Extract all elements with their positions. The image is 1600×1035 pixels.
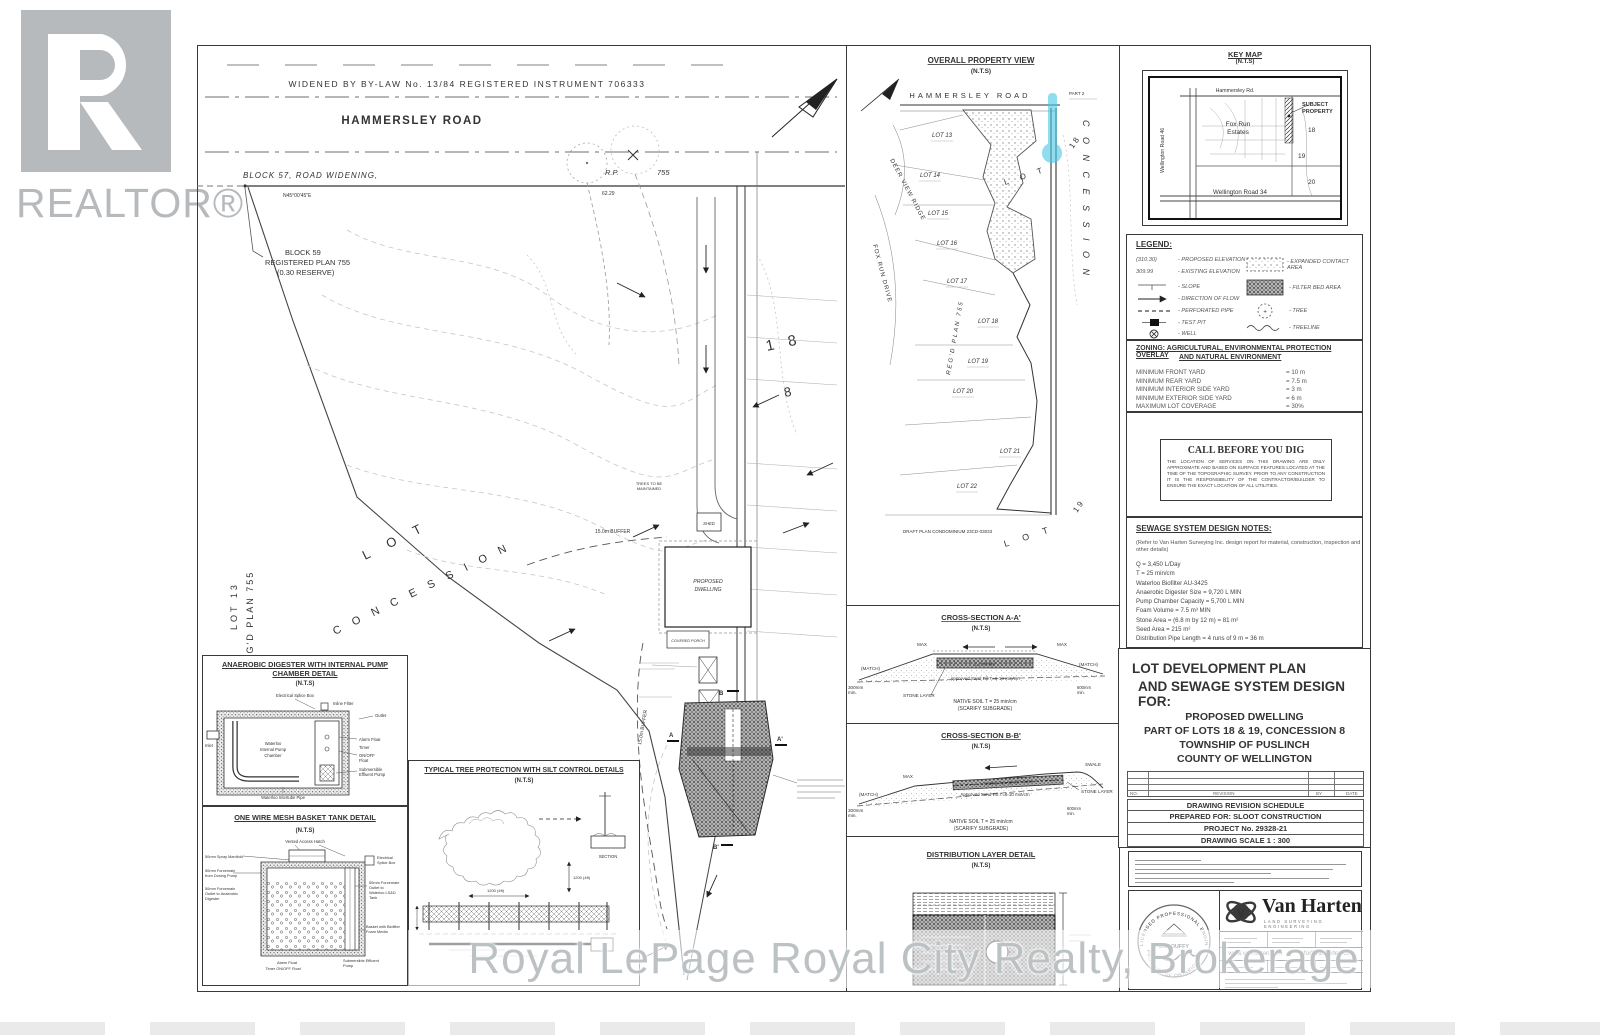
ca-native: NATIVE SOIL T = 25 min/cm xyxy=(953,699,1016,705)
zoning-row1-label: MINIMUM REAR YARD xyxy=(1136,378,1286,387)
digester-sub-2: Effluent Pump xyxy=(359,772,386,777)
lot-18-number: 1 8 xyxy=(764,331,803,355)
sewage-title: SEWAGE SYSTEM DESIGN NOTES: xyxy=(1136,524,1272,533)
sewage-intro-2: other details) xyxy=(1136,547,1168,553)
revision-table: NO. REVISION BY DATE xyxy=(1127,771,1364,797)
legend-label-perforated: - PERFORATED PIPE xyxy=(1178,308,1234,314)
treeline-icon xyxy=(1245,323,1289,333)
basket-fa-3: Digester xyxy=(205,896,220,901)
call-before-dig-panel: CALL BEFORE YOU DIG THE LOCATION OF SERV… xyxy=(1126,412,1363,517)
section-b2-marker: B' xyxy=(713,845,719,851)
svg-text:LOT 22: LOT 22 xyxy=(957,484,978,490)
panel-divider-2 xyxy=(1119,46,1120,991)
basket-sub-2: Pump xyxy=(343,963,353,968)
keymap-20: 20 xyxy=(1308,179,1316,186)
zoning-row0-value: = 10 m xyxy=(1286,369,1305,378)
rev-col-by: BY xyxy=(1316,791,1322,796)
shed-label: SHED xyxy=(703,521,715,526)
sewage-item-6: Stone Area = (6.8 m by 12 m) = 81 m² xyxy=(1136,616,1264,625)
sewage-item-7: Seed Area = 215 m² xyxy=(1136,625,1264,634)
dwelling-label-2: DWELLING xyxy=(694,587,721,593)
legend-label-slope: - SLOPE xyxy=(1178,284,1200,290)
cross-a-nts: (N.T.S) xyxy=(972,626,991,632)
digester-inlet-label: Inlet xyxy=(205,743,214,748)
north-arrow-icon xyxy=(772,79,837,137)
keymap-18: 18 xyxy=(1308,127,1316,134)
sewage-item-0: Q = 3,450 L/Day xyxy=(1136,560,1264,569)
vanharten-globe-icon: V xyxy=(1224,895,1258,929)
filter-bed-icon xyxy=(1245,279,1289,297)
basket-timer-label: Timer ON/OFF Float xyxy=(265,966,301,971)
drawing-scale-row: DRAWING SCALE 1 : 300 xyxy=(1127,835,1364,847)
road-label: HAMMERSLEY ROAD xyxy=(341,115,482,127)
ca-max-r: MAX xyxy=(1057,642,1067,647)
fine-print-notes xyxy=(1128,851,1362,887)
distance-label: 62.29 xyxy=(602,191,615,197)
buffer-label-2: 15.0m BUFFER xyxy=(595,529,631,535)
brokerage-watermark-band: Royal LePage Royal City Realty, Brokerag… xyxy=(408,930,1420,988)
vanharten-logo-row: V Van Harten LAND SURVEYING ENGINEERING xyxy=(1220,891,1363,931)
bottom-scan-strip xyxy=(0,1022,1600,1035)
legend-sym-proposed: (310.30) xyxy=(1136,257,1178,263)
digester-title-2: CHAMBER DETAIL xyxy=(203,669,407,678)
block59-line1: BLOCK 59 xyxy=(285,248,321,257)
svg-text:LOT 20: LOT 20 xyxy=(953,389,974,395)
zoning-row2-value: = 3 m xyxy=(1286,386,1302,395)
dist-nts: (N.T.S) xyxy=(972,863,991,869)
digester-detail-panel: ANAEROBIC DIGESTER WITH INTERNAL PUMP CH… xyxy=(202,655,408,806)
legend-label-contact: - EXPANDED CONTACT AREA xyxy=(1287,259,1362,271)
basket-splice-2: Splice Box xyxy=(377,860,395,865)
sewage-item-1: T = 25 min/cm xyxy=(1136,569,1264,578)
titleblock-p1: PROPOSED DWELLING xyxy=(1119,711,1370,723)
ca-match-r: (MATCH) xyxy=(1079,662,1099,667)
digester-splice-label: Electrical Splice Box xyxy=(276,693,315,698)
svg-text:LOT 21: LOT 21 xyxy=(1000,449,1020,455)
overall-lot-bottom-label: L O T xyxy=(1003,523,1056,549)
basket-alarm-label: Alarm Float xyxy=(277,960,298,965)
call-dig-body: THE LOCATION OF SERVICES ON THIS DRAWING… xyxy=(1161,456,1331,492)
vanharten-name: Van Harten xyxy=(1262,895,1362,918)
digester-timer-label: Timer xyxy=(359,745,370,750)
cb-match: (MATCH) xyxy=(859,792,879,797)
sewage-item-4: Pump Chamber Capacity = 5,700 L MIN xyxy=(1136,597,1264,606)
rev-col-no: NO. xyxy=(1130,791,1138,796)
cb-stone: STONE LAYER xyxy=(1081,789,1113,794)
section-b-marker: B xyxy=(719,691,724,697)
cross-b-nts: (N.T.S) xyxy=(972,744,991,750)
block59-line2: REGISTERED PLAN 755 xyxy=(265,258,350,267)
buffer-label-1: 15.0m BUFFER xyxy=(637,709,649,745)
tree-section-label: SECTION xyxy=(599,854,618,859)
draft-plan-label: DRAFT PLAN CONDOMINIUM 23CD-03033 xyxy=(903,529,993,534)
lot-diagonal-label: L O T xyxy=(360,518,431,563)
ca-sand: Approved Sand Fill T=6-10 min/cm xyxy=(950,676,1020,681)
legend-label-existing: - EXISTING ELEVATION xyxy=(1178,269,1240,275)
keymap-nts: (N.T.S) xyxy=(1128,59,1362,65)
tree-canopy xyxy=(439,811,541,886)
deer-view-ridge-label: DEER VIEW RIDGE xyxy=(888,158,926,222)
concession-8-number: 8 xyxy=(783,384,793,400)
digester-alarm-label: Alarm Float xyxy=(359,737,381,742)
cb-scarify: (SCARIFY SUBGRADE) xyxy=(954,826,1009,832)
basket-hatch-label: Vented Access Hatch xyxy=(285,839,325,844)
perforated-pipe-icon xyxy=(1136,307,1178,315)
digester-nts: (N.T.S) xyxy=(203,681,407,687)
part2-label: PART 2 xyxy=(1069,91,1085,96)
keymap-wellington46: Wellington Road 46 xyxy=(1160,128,1166,173)
legend-label-proposed: - PROPOSED ELEVATION xyxy=(1178,257,1245,263)
well-icon xyxy=(1136,329,1178,339)
zoning-row3-value: = 6 m xyxy=(1286,395,1302,404)
svg-text:LOT 18: LOT 18 xyxy=(978,319,999,325)
basket-title: ONE WIRE MESH BASKET TANK DETAIL xyxy=(203,813,407,822)
sewage-item-8: Distribution Pipe Length = 4 runs of 9 m… xyxy=(1136,634,1264,643)
bearing-label: N45°00'45"E xyxy=(283,193,312,199)
trees-maintained-note: TREES TO BE MAINTAINED xyxy=(636,481,663,491)
tree-dim-1: 1200 (4ft) xyxy=(573,875,591,880)
cb-600b: min. xyxy=(1067,811,1075,816)
sewage-intro-1: (Refer to Van Harten Surveying Inc. desi… xyxy=(1136,540,1360,546)
titleblock-h2: AND SEWAGE SYSTEM DESIGN FOR: xyxy=(1138,679,1370,709)
legend-sym-existing: 309.99 xyxy=(1136,269,1178,275)
ca-match-l: (MATCH) xyxy=(861,666,881,671)
trees-at-road xyxy=(567,126,679,365)
section-a2-marker: A' xyxy=(777,737,783,743)
zoning-row4-label: MAXIMUM LOT COVERAGE xyxy=(1136,403,1286,412)
overall-18-label: 1 8 xyxy=(1067,135,1081,150)
svg-text:MAINTAINED: MAINTAINED xyxy=(637,486,661,491)
highlighter-mark xyxy=(1042,93,1062,163)
legend-label-filterbed: - FILTER BED AREA xyxy=(1289,285,1341,291)
block57-label: BLOCK 57, ROAD WIDENING, xyxy=(243,171,378,180)
keymap-wellington34: Wellington Road 34 xyxy=(1213,189,1267,196)
svg-text:LOT 13: LOT 13 xyxy=(932,133,953,139)
filter-bed: A A' B B' xyxy=(667,691,845,851)
zoning-title-2: AND NATURAL ENVIRONMENT xyxy=(1179,354,1281,361)
cb-swale: SWALE xyxy=(1085,762,1101,767)
svg-text:LOT 17: LOT 17 xyxy=(947,279,968,285)
digester-outlet-label: Outlet xyxy=(375,713,387,718)
titleblock-p2: PART OF LOTS 18 & 19, CONCESSION 8 xyxy=(1119,725,1370,737)
cross-b-title: CROSS-SECTION B-B' xyxy=(941,731,1021,740)
tree-dim-2: 1200 (4ft) xyxy=(487,888,505,893)
bylaw-label: WIDENED BY BY-LAW No. 13/84 REGISTERED I… xyxy=(288,79,645,89)
zoning-row4-value: = 30% xyxy=(1286,403,1304,412)
dwelling-label-1: PROPOSED xyxy=(693,579,723,585)
svg-text:+: + xyxy=(1263,310,1267,316)
keymap-panel: KEY MAP (N.T.S) xyxy=(1128,50,1362,232)
slope-icon xyxy=(1136,282,1178,292)
dist-title: DISTRIBUTION LAYER DETAIL xyxy=(927,850,1036,859)
sewage-item-5: Foam Volume = 7.5 m³ MIN xyxy=(1136,606,1264,615)
zoning-row2-label: MINIMUM INTERIOR SIDE YARD xyxy=(1136,386,1286,395)
overall-title: OVERALL PROPERTY VIEW xyxy=(928,56,1035,65)
rp-label: R.P. xyxy=(605,168,619,177)
project-no-row: PROJECT No. 29328-21 xyxy=(1127,823,1364,835)
overall-north-arrow-icon xyxy=(861,79,899,111)
basket-bk-2: Foam Media xyxy=(366,929,388,934)
basket-detail-panel: ONE WIRE MESH BASKET TANK DETAIL (N.T.S)… xyxy=(202,806,408,986)
basket-drawing: Vented Access Hatch 50mm Spray Manifold … xyxy=(203,836,407,976)
legend-label-testpit: - TEST PIT xyxy=(1178,320,1206,326)
zoning-row0-label: MINIMUM FRONT YARD xyxy=(1136,369,1286,378)
legend-title: LEGEND: xyxy=(1136,240,1172,249)
fox-run-drive-label: FOX RUN DRIVE xyxy=(871,244,892,304)
subject-label-1: SUBJECT xyxy=(1302,102,1329,108)
ca-scarify: (SCARIFY SUBGRADE) xyxy=(958,706,1013,712)
keymap-hammersley: Hammersley Rd. xyxy=(1216,88,1255,94)
titleblock-p4: COUNTY OF WELLINGTON xyxy=(1119,753,1370,765)
ca-300b: min. xyxy=(848,690,857,695)
legend-label-flow: - DIRECTION OF FLOW xyxy=(1178,296,1239,302)
digester-chamber-2: Internal Pump xyxy=(260,747,287,752)
basket-manifold-label: 50mm Spray Manifold xyxy=(205,854,243,859)
keymap-19: 19 xyxy=(1298,153,1306,160)
call-dig-title: CALL BEFORE YOU DIG xyxy=(1161,445,1331,456)
section-a-marker: A xyxy=(669,733,674,739)
brokerage-watermark-text: Royal LePage Royal City Realty, Brokerag… xyxy=(468,934,1359,984)
cross-section-b: CROSS-SECTION B-B' (N.T.S) (MATCH) MAX 3… xyxy=(845,722,1118,835)
digester-chamber-1: Waterloo xyxy=(265,741,282,746)
cb-300b: min. xyxy=(848,813,857,818)
svg-text:LOT 15: LOT 15 xyxy=(928,211,949,217)
keymap-fox1: Fox Run xyxy=(1226,121,1251,128)
digester-inline-label: Inline Filter xyxy=(333,701,354,706)
vanharten-tagline: LAND SURVEYING ENGINEERING xyxy=(1264,919,1363,929)
realtor-r-icon xyxy=(16,10,176,180)
legend-label-tree: - TREE xyxy=(1289,308,1307,314)
flow-arrow-icon xyxy=(1136,295,1178,303)
ca-12max: 1.2 m max. xyxy=(975,662,996,667)
digester-drawing: Electrical Splice Box Inline Filter Outl… xyxy=(203,689,407,801)
overall-road-label: HAMMERSLEY ROAD xyxy=(909,91,1030,100)
keymap-drawing: SUBJECT PROPERTY Hammersley Rd. Wellingt… xyxy=(1150,78,1340,218)
titleblock-h1: LOT DEVELOPMENT PLAN xyxy=(1132,661,1306,676)
title-block: LOT DEVELOPMENT PLAN AND SEWAGE SYSTEM D… xyxy=(1118,648,1371,848)
cb-native: NATIVE SOIL T = 25 min/cm xyxy=(949,819,1012,825)
zoning-row1-value: = 7.5 m xyxy=(1286,378,1307,387)
digester-title-1: ANAEROBIC DIGESTER WITH INTERNAL PUMP xyxy=(203,660,407,669)
ca-max-l: MAX xyxy=(917,642,927,647)
svg-text:LOT 16: LOT 16 xyxy=(937,241,958,247)
cb-sand: Approved Sand Fill T=6-10 min/cm xyxy=(960,792,1030,797)
basket-fd-2: from Dosing Pump xyxy=(205,873,237,878)
sewage-item-3: Anaerobic Digester Size = 9,720 L MIN xyxy=(1136,588,1264,597)
digester-tube-label: Waterloo Intertube Pipe xyxy=(261,795,306,800)
digester-chamber-3: Chamber xyxy=(264,753,282,758)
overall-concession-label: C O N C E S S I O N xyxy=(1081,120,1091,279)
proposed-dwelling: PROPOSED DWELLING COVERED PORCH SHED xyxy=(659,513,757,648)
driveway xyxy=(697,197,737,543)
legend-label-well: - WELL xyxy=(1178,331,1197,337)
overall-19-label: 1 9 xyxy=(1071,499,1085,514)
tree-title: TYPICAL TREE PROTECTION WITH SILT CONTRO… xyxy=(409,767,639,774)
svg-text:LOT 19: LOT 19 xyxy=(968,359,989,365)
cb-max: MAX xyxy=(903,774,913,779)
legend-panel: LEGEND: (310.30)- PROPOSED ELEVATION 309… xyxy=(1126,234,1363,340)
sewage-notes-panel: SEWAGE SYSTEM DESIGN NOTES: (Refer to Va… xyxy=(1126,517,1363,648)
cross-a-title: CROSS-SECTION A-A' xyxy=(941,613,1021,622)
svg-text:LOT 14: LOT 14 xyxy=(920,173,941,179)
basket-ft-4: Tank xyxy=(369,895,377,900)
zoning-panel: ZONING: AGRICULTURAL, ENVIRONMENTAL PROT… xyxy=(1126,340,1363,412)
tree-icon: + xyxy=(1245,303,1289,319)
prepared-for-row: PREPARED FOR: SLOOT CONSTRUCTION xyxy=(1127,811,1364,823)
test-pit-icon xyxy=(1136,318,1178,327)
block59-line3: (0.30 RESERVE) xyxy=(277,268,335,277)
rp-num-label: 755 xyxy=(657,168,670,177)
creek-line xyxy=(1063,135,1077,305)
lot13-vertical-label: LOT 13 xyxy=(229,582,239,630)
rev-col-revision: REVISION xyxy=(1213,791,1235,796)
subject-label-2: PROPERTY xyxy=(1302,109,1333,115)
keymap-fox2: Estates xyxy=(1227,129,1249,136)
zoning-row3-label: MINIMUM EXTERIOR SIDE YARD xyxy=(1136,395,1286,404)
ca-600b: min. xyxy=(1077,690,1085,695)
regd-plan-label: REG'D PLAN 755 xyxy=(946,300,965,375)
concession-diagonal-label: C O N C E S S I O N xyxy=(331,541,513,638)
legend-label-treeline: - TREELINE xyxy=(1289,325,1320,331)
overall-nts: (N.T.S) xyxy=(971,68,991,75)
keymap-title: KEY MAP xyxy=(1128,50,1362,59)
scanned-survey-plan: REALTOR® WIDENED BY BY-LAW No. 13/84 REG… xyxy=(0,0,1600,1035)
expanded-contact-icon xyxy=(1245,257,1287,273)
overall-property-view: OVERALL PROPERTY VIEW (N.T.S) HAMMERSLEY… xyxy=(845,45,1118,604)
svg-text:V: V xyxy=(1237,908,1245,920)
basket-nts: (N.T.S) xyxy=(203,828,407,834)
cross-section-a: CROSS-SECTION A-A' (N.T.S) (MATCH) MAX M… xyxy=(845,604,1118,722)
titleblock-p3: TOWNSHIP OF PUSLINCH xyxy=(1119,739,1370,751)
digester-onoff-2: Float xyxy=(359,758,369,763)
sewage-item-2: Waterloo Biofilter AU-3425 xyxy=(1136,579,1264,588)
rev-col-date: DATE xyxy=(1346,791,1358,796)
subject-parcel-stipple xyxy=(963,110,1036,273)
revision-schedule-row: DRAWING REVISION SCHEDULE xyxy=(1127,799,1364,811)
porch-label: COVERED PORCH xyxy=(671,639,705,643)
ca-stone: STONE LAYER xyxy=(903,693,935,698)
